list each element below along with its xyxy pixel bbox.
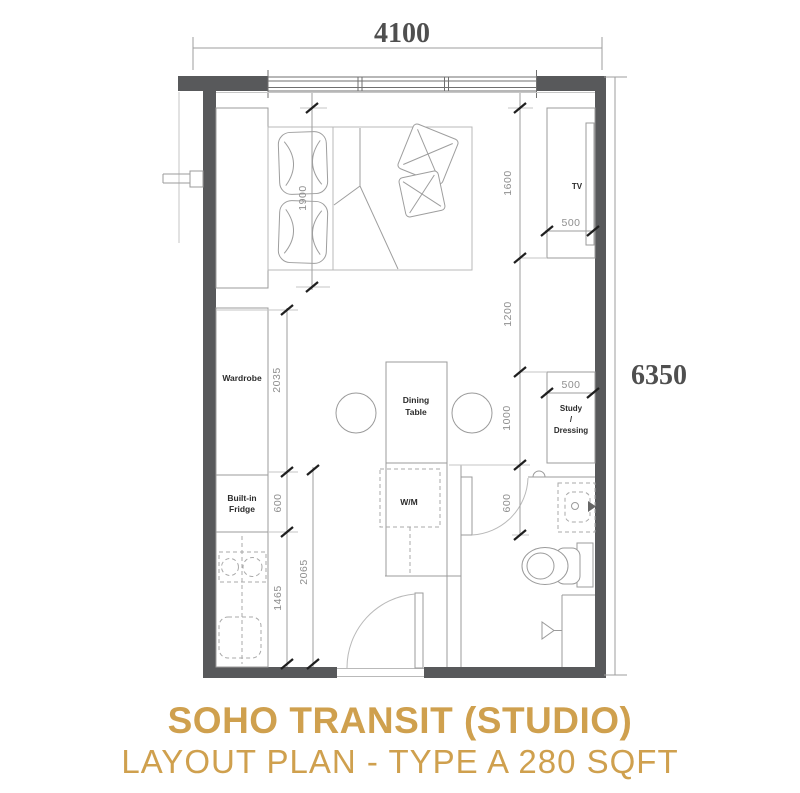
wash-basin xyxy=(565,492,590,522)
vanity xyxy=(558,483,596,532)
entrance-threshold xyxy=(337,669,424,677)
entrance-door-swing xyxy=(347,594,415,668)
window xyxy=(268,70,537,98)
bathroom-door-leaf xyxy=(461,477,472,535)
dim-label-study-length: 1000 xyxy=(501,405,513,430)
dim-label-overall-height: 6350 xyxy=(631,360,687,391)
dim-label-tv-depth: 500 xyxy=(561,217,580,229)
dining-chair-left xyxy=(336,393,376,433)
entrance-door xyxy=(347,593,423,668)
room-label-wardrobe: Wardrobe xyxy=(222,373,262,383)
bathroom xyxy=(447,465,596,667)
plan-subtitle: LAYOUT PLAN - TYPE A 280 SQFT xyxy=(0,743,800,781)
shower-head-icon xyxy=(542,622,554,639)
dim-label-study-depth: 500 xyxy=(561,379,580,391)
room-label-fridge-2: Fridge xyxy=(229,504,255,514)
room-label-tv: TV xyxy=(572,182,583,191)
wall-bottom-right xyxy=(424,667,606,678)
dim-label-fridge: 600 xyxy=(272,493,284,512)
entrance-door-leaf xyxy=(415,593,423,668)
wm-counter: W/M xyxy=(380,463,461,576)
room-label-dining-1: Dining xyxy=(403,395,429,405)
wall-top-left xyxy=(178,76,268,91)
floor-plan: 4100 6350 Wardrobe Built-in Fridge xyxy=(0,0,800,700)
dim-label-tv-length: 1600 xyxy=(502,170,514,195)
dining-chair-right xyxy=(452,393,492,433)
dim-label-wardrobe: 2035 xyxy=(271,367,283,392)
room-label-dining-2: Table xyxy=(405,407,427,417)
basin-drain xyxy=(572,503,579,510)
bedside-cabinet xyxy=(216,108,268,288)
wall-left xyxy=(203,76,216,678)
dim-label-counter: 1465 xyxy=(272,585,284,610)
plan-title: SOHO TRANSIT (STUDIO) xyxy=(0,700,800,742)
wall-bottom-left xyxy=(203,667,337,678)
shower xyxy=(542,595,595,667)
wardrobe xyxy=(216,308,268,475)
toilet-bowl xyxy=(522,548,568,585)
dim-label-gap: 1200 xyxy=(502,301,514,326)
dining-set: Dining Table xyxy=(336,362,492,463)
tv xyxy=(586,123,594,245)
door-stop xyxy=(533,471,545,477)
room-label-fridge-1: Built-in xyxy=(227,493,256,503)
wall-right xyxy=(595,76,606,678)
room-label-study-3: Dressing xyxy=(554,426,588,435)
room-label-study-1: Study xyxy=(560,404,583,413)
dim-label-wm-run: 2065 xyxy=(298,559,310,584)
room-label-wm: W/M xyxy=(400,497,417,507)
dim-label-bath-door: 600 xyxy=(501,493,513,512)
blanket-fold xyxy=(334,128,398,269)
toilet xyxy=(522,543,593,587)
dim-label-overall-width: 4100 xyxy=(374,18,430,49)
exterior-pipe-bracket xyxy=(163,92,203,243)
cushion-small xyxy=(398,170,445,217)
floor-plan-page: 4100 6350 Wardrobe Built-in Fridge xyxy=(0,0,800,793)
pillow-top xyxy=(278,131,328,195)
left-cabinets: Wardrobe Built-in Fridge xyxy=(216,108,268,667)
dim-label-bed: 1900 xyxy=(297,185,309,210)
